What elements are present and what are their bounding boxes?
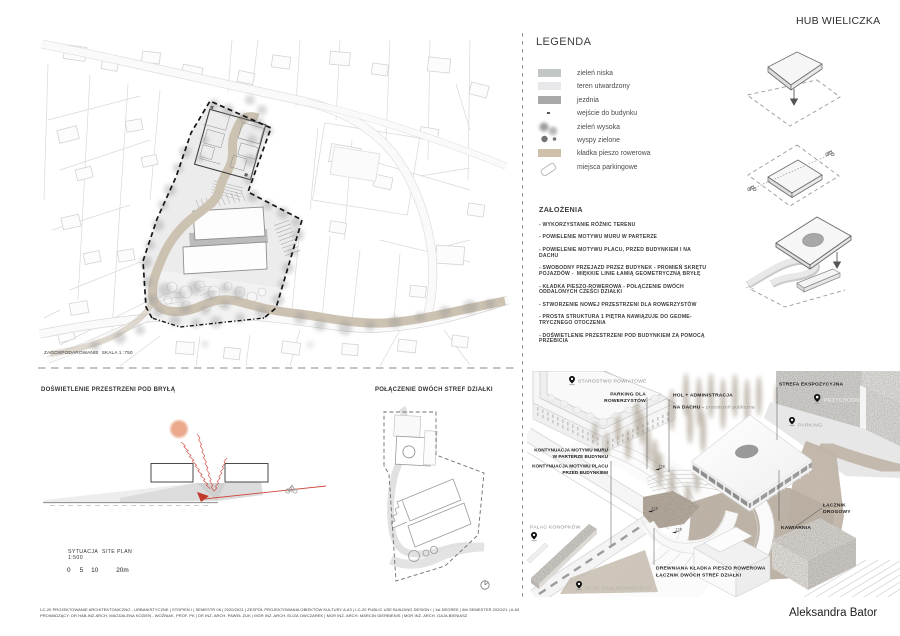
svg-text:1:18: 1:18 — [651, 507, 657, 511]
svg-text:DROGOWY: DROGOWY — [823, 509, 851, 515]
svg-text:1:18: 1:18 — [658, 465, 664, 469]
svg-text:PARKING: PARKING — [798, 423, 822, 429]
svg-text:PAŁAC KONOPKÓW: PAŁAC KONOPKÓW — [530, 524, 581, 531]
svg-text:KONTYNUACJA MOTYWU PLACU: KONTYNUACJA MOTYWU PLACU — [532, 464, 608, 469]
svg-text:PRZED BUDYNKIEM: PRZED BUDYNKIEM — [562, 470, 608, 475]
svg-text:PLAC SKULIMOWSKIEGO: PLAC SKULIMOWSKIEGO — [586, 586, 651, 592]
svg-text:przestrzeń publiczna: przestrzeń publiczna — [706, 405, 755, 411]
svg-text:PARKING DLA: PARKING DLA — [610, 392, 646, 398]
svg-text:W PARTERZE BUDYNKU: W PARTERZE BUDYNKU — [553, 454, 609, 459]
svg-text:ŁĄCZNIK: ŁĄCZNIK — [823, 503, 846, 509]
svg-text:PRZYCHODNIA: PRZYCHODNIA — [824, 398, 865, 404]
svg-text:NA DACHU -: NA DACHU - — [673, 405, 704, 411]
svg-text:STREFA EKSPOZYCYJNA: STREFA EKSPOZYCYJNA — [779, 382, 843, 388]
svg-text:STAROSTWO POWIATOWE: STAROSTWO POWIATOWE — [578, 379, 647, 385]
svg-text:KAWIARNIA: KAWIARNIA — [781, 525, 811, 531]
svg-text:HOL + ADMINISTRACJA: HOL + ADMINISTRACJA — [673, 393, 733, 399]
svg-text:1:18: 1:18 — [675, 528, 681, 532]
svg-text:KONTYNUACJA MOTYWU MURU: KONTYNUACJA MOTYWU MURU — [534, 448, 608, 453]
svg-text:DREWNIANA KŁADKA PIESZO ROWERO: DREWNIANA KŁADKA PIESZO ROWEROWA — [656, 566, 766, 572]
svg-text:ŁĄCZNIK DWÓCH STREF DZIAŁKI: ŁĄCZNIK DWÓCH STREF DZIAŁKI — [656, 571, 742, 579]
